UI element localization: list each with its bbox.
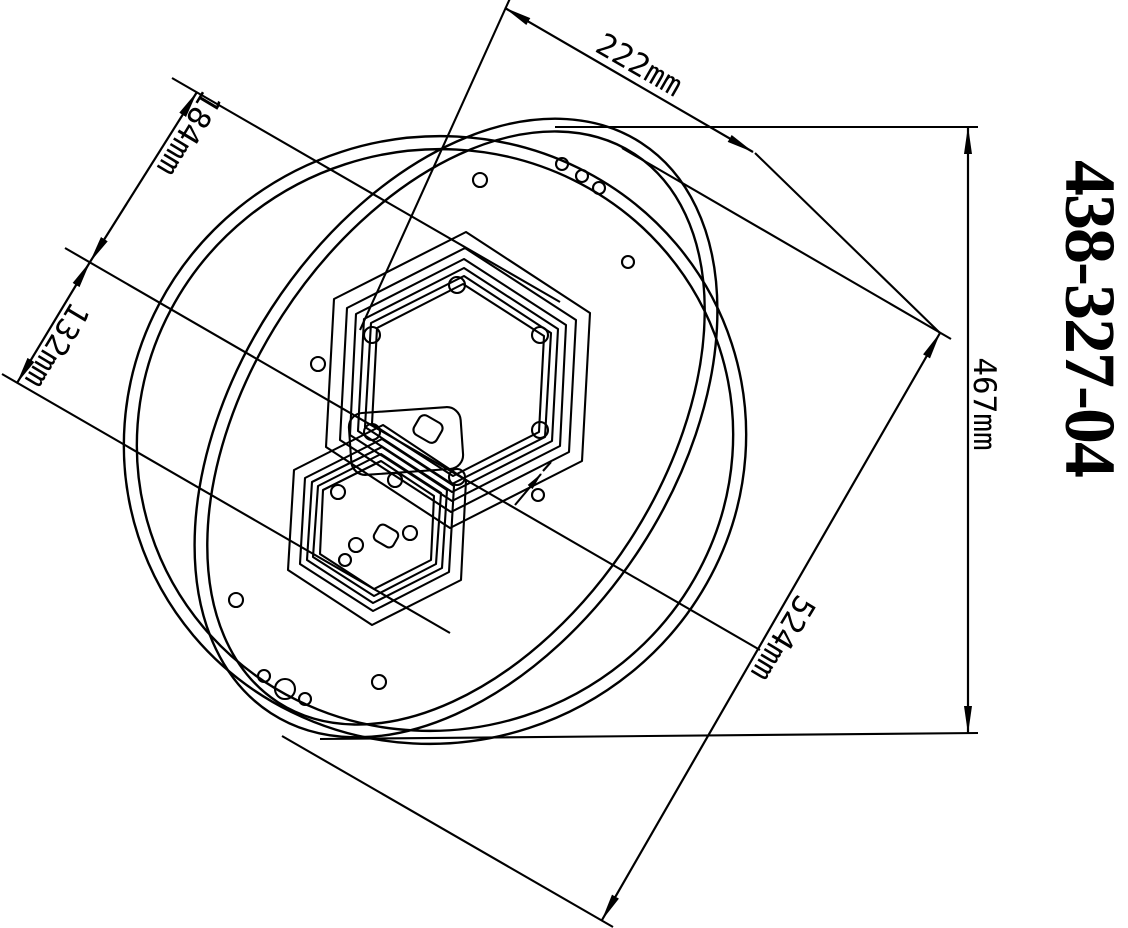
mounting-hole: [576, 170, 588, 182]
mounting-hole: [229, 593, 243, 607]
tilted-ring-rim-inner: [104, 41, 807, 815]
ext-line-524-bottom: [282, 736, 613, 927]
small-hex-outline: [313, 454, 441, 596]
outer-plate-rim-inner: [61, 72, 809, 808]
dim-label-222: 222mm: [590, 26, 689, 104]
dim-label-524: 524mm: [743, 589, 822, 688]
hex-corner-hole: [331, 485, 345, 499]
ext-line-222-right: [755, 153, 940, 333]
mounting-hole: [593, 182, 605, 194]
mounting-hole: [311, 357, 325, 371]
small-hex-holes: [331, 473, 417, 566]
ext-line-524-top: [622, 148, 951, 339]
dim-label-184: 184mm: [149, 84, 228, 183]
square-cutout: [372, 523, 400, 550]
hex-corner-hole: [532, 327, 548, 343]
engineering-drawing: 222mm 184mm 132mm 467mm 524mm 438-327-04: [0, 0, 1128, 928]
drawing-sheet: 222mm 184mm 132mm 467mm 524mm 438-327-04: [0, 0, 1128, 928]
square-cutout: [411, 413, 445, 445]
part-number: 438-327-04: [1050, 160, 1128, 477]
mounting-hole: [622, 256, 634, 268]
hex-corner-hole: [532, 489, 544, 501]
mounting-hole: [372, 675, 386, 689]
small-hex-plate: [288, 425, 466, 625]
ext-line-467-bottom: [320, 733, 978, 739]
hex-corner-hole: [349, 538, 363, 552]
dim-label-132: 132mm: [17, 296, 96, 395]
mounting-hole: [473, 173, 487, 187]
ext-line-184-a: [172, 78, 560, 302]
ext-line-132-c: [2, 374, 450, 633]
dim-label-467: 467mm: [966, 357, 1002, 450]
hex-corner-hole: [403, 526, 417, 540]
hex-corner-hole: [339, 554, 351, 566]
large-hex-outline: [372, 284, 544, 476]
